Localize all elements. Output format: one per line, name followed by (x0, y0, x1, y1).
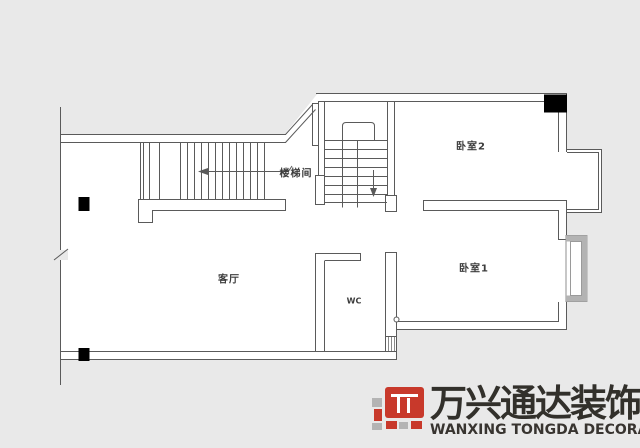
pipe-symbol (394, 317, 399, 322)
logo-block (374, 409, 382, 421)
brand-logo: 万兴通达装饰 WANXING TONGDA DECORATION (372, 386, 640, 437)
brand-name-english: WANXING TONGDA DECORATION (430, 423, 640, 437)
logo-block (372, 423, 382, 430)
brand-name-chinese: 万兴通达装饰 (430, 386, 640, 422)
logo-block (372, 398, 382, 407)
brand-logo-text: 万兴通达装饰 WANXING TONGDA DECORATION (430, 386, 640, 437)
logo-block-main (385, 387, 424, 418)
room-label-stair-hall: 楼梯间 (280, 165, 313, 180)
room-label-bedroom-2: 卧室2 (456, 138, 486, 153)
floor-plan-image: 客厅 楼梯间 卧室2 卧室1 WC 万兴通达装饰 WANXING TONGDA … (0, 0, 640, 448)
logo-block (399, 422, 408, 429)
wall-break-mark (53, 249, 68, 260)
floor-fill (60, 93, 602, 360)
brand-logo-icon (372, 386, 424, 432)
bay-window-bedroom1 (566, 236, 587, 302)
room-label-wc: WC (347, 297, 362, 306)
logo-block (411, 421, 422, 429)
room-label-bedroom-1: 卧室1 (459, 260, 489, 275)
room-label-living-room: 客厅 (218, 271, 240, 286)
floor-plan-drawing (0, 0, 640, 448)
logo-block (386, 421, 397, 429)
